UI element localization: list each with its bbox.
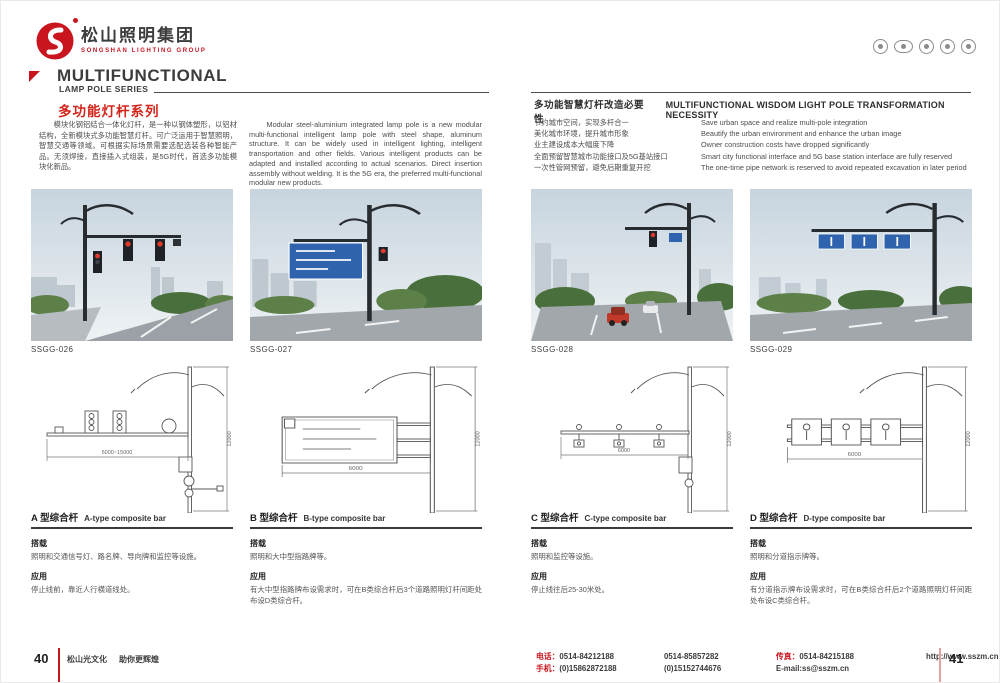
page-number-right: 41 <box>949 651 963 666</box>
necessity-list-en: Save urban space and realize multi-pole … <box>701 117 973 173</box>
cert-badge-2-icon <box>894 40 913 53</box>
application-label: 应用 <box>531 571 733 582</box>
necessity-item-en: The one-time pipe network is reserved to… <box>701 162 973 173</box>
company-logo: 松山照明集团 SONGSHAN LIGHTING GROUP <box>35 21 206 61</box>
application-text: 有大中型指路牌布设需求时，可在B类综合杆后3个道路照明灯杆间距处布设D类综合杆。 <box>250 585 482 606</box>
catalog-spread: 松山照明集团 SONGSHAN LIGHTING GROUP MULTIFUNC… <box>0 0 1000 683</box>
pole-section-a: A 型综合杆 A-type composite bar 搭载 照明和交通信号灯、… <box>31 510 233 596</box>
street-scene-image <box>750 189 972 341</box>
telephone-number-2: 0514-85857282 <box>664 651 776 663</box>
carry-label: 搭载 <box>531 538 733 549</box>
pole-title: D 型综合杆 D-type composite bar <box>750 510 972 524</box>
section-marker-triangle-icon <box>29 71 40 82</box>
carry-label: 搭载 <box>250 538 482 549</box>
header-rule-left <box>154 92 489 93</box>
application-text: 停止线前，靠近人行横道线处。 <box>31 585 233 595</box>
pole-title-rule <box>531 527 733 529</box>
necessity-item-en: Save urban space and realize multi-pole … <box>701 117 973 128</box>
necessity-item-en: Smart city functional interface and 5G b… <box>701 151 973 162</box>
cert-badge-1-icon <box>873 39 888 54</box>
slogan-part2: 助你更辉煌 <box>119 654 159 665</box>
header-rule-right <box>531 92 971 93</box>
carry-text: 照明和大中型指路牌等。 <box>250 552 482 562</box>
dimension-vertical: 12000 <box>227 431 233 446</box>
email-address: E-mail:ss@sszm.cn <box>776 663 926 675</box>
fax: 传真：0514-84215188 <box>776 651 926 663</box>
pole-drawing: 5000~15000 12000 <box>31 361 233 513</box>
application-label: 应用 <box>31 571 233 582</box>
footer-slogan: 松山光文化 助你更辉煌 <box>67 654 159 665</box>
contact-row-2: 手机：(0)15862872188 (0)15152744676 E-mail:… <box>536 663 999 675</box>
photo-caption: SSGG-029 <box>750 345 792 354</box>
mobile-number-1: (0)15862872188 <box>559 664 616 673</box>
intro-paragraph-en: Modular steel-aluminium integrated lamp … <box>249 120 482 188</box>
series-title-cn: 多功能灯杆系列 <box>58 100 160 120</box>
footer-divider-right <box>939 648 941 682</box>
necessity-item-cn: 业主建设成本大幅度下降 <box>534 139 699 150</box>
photo-ssgg-027 <box>250 189 482 341</box>
dimension-vertical: 12000 <box>727 431 733 446</box>
pole-title-en: C-type composite bar <box>585 514 667 523</box>
pole-section-d: D 型综合杆 D-type composite bar 搭载 照明和分道指示牌等… <box>750 510 972 606</box>
pole-title-cn: C 型综合杆 <box>531 510 579 524</box>
application-label: 应用 <box>250 571 482 582</box>
diagram-a-type: 5000~15000 12000 <box>31 361 233 513</box>
photo-caption: SSGG-026 <box>31 345 73 354</box>
necessity-item-en: Owner construction costs have dropped si… <box>701 139 973 150</box>
necessity-list-cn: 节约城市空间，实现多杆合一 美化城市环境，提升城市形象 业主建设成本大幅度下降 … <box>534 117 699 173</box>
series-title-en-line2: LAMP POLE SERIES <box>59 84 148 94</box>
application-text: 有分道指示牌布设需求时，可在B类综合杆后2个道路照明灯杆间距处布设C类综合杆。 <box>750 585 972 606</box>
pole-title-rule <box>31 527 233 529</box>
pole-title-cn: B 型综合杆 <box>250 510 298 524</box>
pole-title-rule <box>750 527 972 529</box>
cert-badge-5-icon <box>961 39 976 54</box>
pole-title-rule <box>250 527 482 529</box>
diagram-d-type: 6000 12000 <box>750 361 972 513</box>
pole-drawing: 6000 12000 <box>250 361 482 513</box>
logo-trademark-dot <box>73 18 78 23</box>
lane-signs <box>818 234 910 249</box>
carry-text: 照明和分道指示牌等。 <box>750 552 972 562</box>
photo-caption: SSGG-028 <box>531 345 573 354</box>
pole-section-c: C 型综合杆 C-type composite bar 搭载 照明和监控等设施。… <box>531 510 733 596</box>
telephone: 电话：0514-84212188 <box>536 651 664 663</box>
footer-divider-left <box>58 648 60 682</box>
dimension-vertical: 12000 <box>966 431 972 446</box>
carry-label: 搭载 <box>750 538 972 549</box>
telephone-label: 电话： <box>536 652 559 661</box>
pole-title-en: B-type composite bar <box>304 514 386 523</box>
photo-caption: SSGG-027 <box>250 345 292 354</box>
street-scene-image <box>531 189 733 341</box>
dimension-horizontal: 6000 <box>848 452 861 458</box>
street-scene-image <box>250 189 482 341</box>
certification-icons <box>873 39 976 54</box>
page-number-left: 40 <box>34 651 48 666</box>
dimension-horizontal: 6000 <box>349 466 364 472</box>
logo-swirl-icon <box>35 21 75 61</box>
fax-label: 传真： <box>776 652 799 661</box>
application-text: 停止线往后25-30米处。 <box>531 585 733 595</box>
carry-text: 照明和监控等设施。 <box>531 552 733 562</box>
fax-number: 0514-84215188 <box>799 652 854 661</box>
photo-ssgg-029 <box>750 189 972 341</box>
intro-paragraph-cn: 模块化钢铝结合一体化灯杆，是一种以钢体塑形，以铝材结构，全新模块式多功能智慧灯杆… <box>39 120 237 173</box>
necessity-item-cn: 全面预留智慧城市功能接口及5G基站接口 <box>534 151 699 162</box>
application-label: 应用 <box>750 571 972 582</box>
logo-text: 松山照明集团 SONGSHAN LIGHTING GROUP <box>81 21 206 54</box>
cert-badge-3-icon <box>919 39 934 54</box>
dimension-horizontal: 6000 <box>618 448 630 454</box>
street-scene-image <box>31 189 233 341</box>
pole-drawing: 6000 12000 <box>750 361 972 513</box>
diagram-b-type: 6000 12000 <box>250 361 482 513</box>
necessity-item-cn: 一次性管网预留，避免后期重复开挖 <box>534 162 699 173</box>
carry-label: 搭载 <box>31 538 233 549</box>
pole-title-cn: D 型综合杆 <box>750 510 798 524</box>
pole-title-en: D-type composite bar <box>804 514 886 523</box>
series-title-en-line1: MULTIFUNCTIONAL <box>57 66 227 86</box>
cert-badge-4-icon <box>940 39 955 54</box>
pole-title: C 型综合杆 C-type composite bar <box>531 510 733 524</box>
pole-drawing: 6000 12000 <box>531 361 733 513</box>
pole-title-cn: A 型综合杆 <box>31 510 78 524</box>
road <box>531 301 733 341</box>
photo-ssgg-028 <box>531 189 733 341</box>
necessity-item-en: Beautify the urban environment and enhan… <box>701 128 973 139</box>
mobile-label: 手机： <box>536 664 559 673</box>
slogan-part1: 松山光文化 <box>67 654 107 665</box>
mobile: 手机：(0)15862872188 <box>536 663 664 675</box>
necessity-item-cn: 美化城市环境，提升城市形象 <box>534 128 699 139</box>
pole-title-en: A-type composite bar <box>84 514 166 523</box>
dimension-horizontal: 5000~15000 <box>102 450 133 456</box>
pole-section-b: B 型综合杆 B-type composite bar 搭载 照明和大中型指路牌… <box>250 510 482 606</box>
contact-row-1: 电话：0514-84212188 0514-85857282 传真：0514-8… <box>536 651 999 663</box>
diagram-c-type: 6000 12000 <box>531 361 733 513</box>
necessity-item-cn: 节约城市空间，实现多杆合一 <box>534 117 699 128</box>
carry-text: 照明和交通信号灯、路名牌、导向牌和监控等设施。 <box>31 552 233 562</box>
mobile-number-2: (0)15152744676 <box>664 663 776 675</box>
footer-contact: 电话：0514-84212188 0514-85857282 传真：0514-8… <box>536 651 999 675</box>
telephone-number-1: 0514-84212188 <box>559 652 614 661</box>
pole-title: B 型综合杆 B-type composite bar <box>250 510 482 524</box>
photo-ssgg-026 <box>31 189 233 341</box>
company-name-cn: 松山照明集团 <box>81 26 206 46</box>
pole-title: A 型综合杆 A-type composite bar <box>31 510 233 524</box>
dimension-vertical: 12000 <box>475 431 481 447</box>
company-name-en: SONGSHAN LIGHTING GROUP <box>81 48 206 54</box>
